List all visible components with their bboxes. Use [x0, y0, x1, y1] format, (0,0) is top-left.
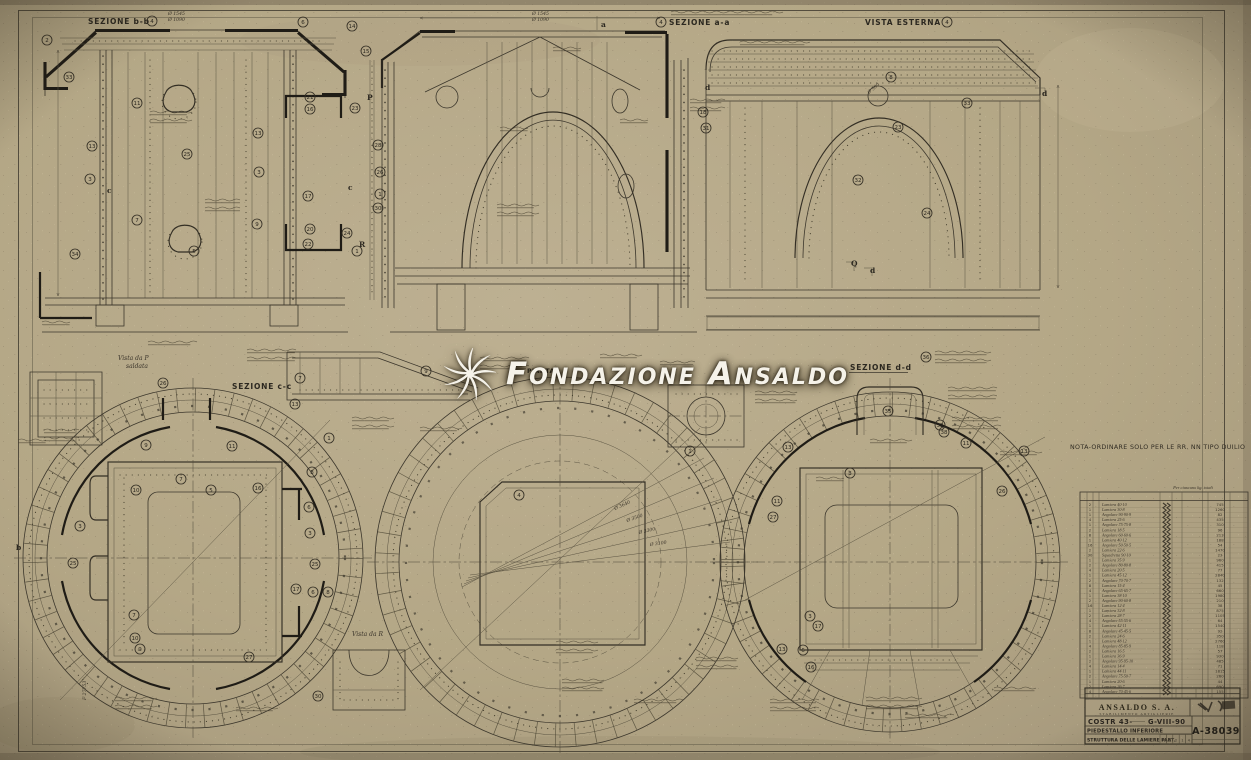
drawing-canvas: 2Lamiera 40·107451Lamiera 30·812601Angol…: [0, 0, 1251, 760]
blueprint-sheet: 2Lamiera 40·107451Lamiera 30·812601Angol…: [0, 0, 1251, 760]
edge-vignette: [0, 0, 1251, 760]
